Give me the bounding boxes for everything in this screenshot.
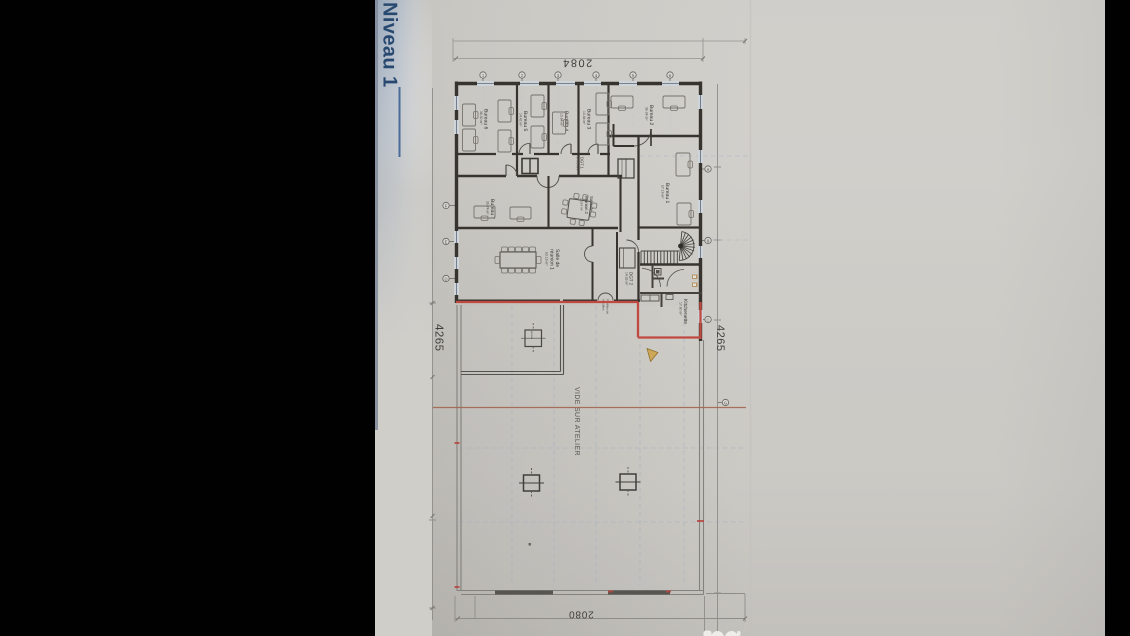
- svg-text:(7.75 m²): (7.75 m²): [576, 157, 580, 170]
- svg-text:14.42 m²: 14.42 m²: [519, 113, 523, 127]
- svg-text:réunion 2: réunion 2: [584, 196, 589, 215]
- svg-text:2080: 2080: [568, 609, 593, 620]
- svg-text:2084: 2084: [562, 57, 592, 69]
- svg-text:4265: 4265: [714, 325, 726, 351]
- svg-text:4265: 4265: [433, 324, 445, 352]
- svg-text:poteau: poteau: [530, 331, 533, 339]
- svg-text:D: D: [444, 277, 447, 282]
- svg-text:13.84 m²: 13.84 m²: [560, 113, 564, 127]
- svg-text:meubles: meubles: [602, 299, 606, 311]
- svg-text:C: C: [706, 318, 709, 323]
- svg-text:F: F: [445, 204, 448, 209]
- svg-text:17.80 m²: 17.80 m²: [679, 302, 683, 316]
- svg-text:14.35 m²: 14.35 m²: [625, 272, 629, 286]
- svg-text:A: A: [707, 167, 710, 172]
- svg-text:63.19 m²: 63.19 m²: [545, 252, 549, 266]
- svg-text:Niveau 1: Niveau 1: [379, 2, 401, 87]
- svg-text:E: E: [445, 240, 448, 245]
- svg-text:36.34 m²: 36.34 m²: [645, 107, 649, 121]
- svg-text:35.74 m²: 35.74 m²: [486, 201, 490, 215]
- svg-text:57.19 m²: 57.19 m²: [661, 185, 665, 199]
- svg-text:36.30 m²: 36.30 m²: [479, 111, 483, 125]
- svg-text:VIDE SUR ATELIER: VIDE SUR ATELIER: [573, 387, 580, 456]
- svg-text:G: G: [724, 401, 727, 406]
- svg-text:B: B: [707, 239, 710, 244]
- svg-text:13.84 m²: 13.84 m²: [582, 111, 586, 125]
